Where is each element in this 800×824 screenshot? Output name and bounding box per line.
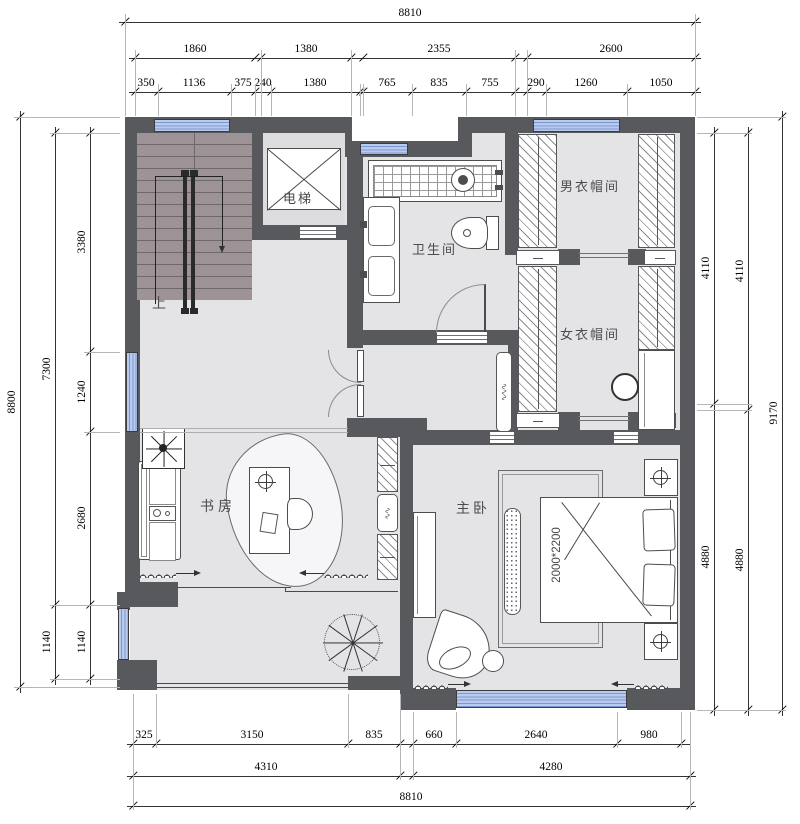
dim-label: 4880 — [734, 530, 746, 590]
extension-line — [412, 84, 413, 116]
dim-line — [714, 127, 715, 716]
dim-label: 4110 — [700, 238, 712, 298]
dim-label: 4110 — [734, 241, 746, 301]
extension-line — [515, 50, 516, 116]
dim-label: 3150 — [222, 729, 282, 741]
extension-line — [697, 710, 752, 711]
dim-label: 1140 — [76, 612, 88, 672]
dim-line — [129, 92, 701, 93]
extension-line — [681, 712, 682, 748]
dim-line — [20, 111, 21, 693]
extension-line — [690, 712, 691, 780]
extension-line — [617, 712, 618, 748]
extension-line — [466, 84, 467, 116]
dim-label: 1380 — [276, 43, 336, 55]
extension-line — [133, 694, 134, 748]
extension-line — [348, 694, 349, 748]
extension-line — [400, 694, 401, 748]
extension-line — [50, 679, 120, 680]
extension-line — [14, 687, 120, 688]
dim-label: 8800 — [6, 372, 18, 432]
extension-line — [133, 748, 134, 780]
dim-label: 2600 — [581, 43, 641, 55]
extension-line — [133, 780, 134, 810]
extension-line — [527, 50, 528, 116]
floor-plan: ∿∿∿ ∿∿ 上 — [0, 0, 800, 824]
extension-line — [546, 84, 547, 116]
extension-line — [156, 694, 157, 748]
dim-label: 240 — [233, 77, 293, 89]
dim-label: 4880 — [700, 527, 712, 587]
extension-line — [456, 712, 457, 748]
dim-label: 7300 — [41, 339, 53, 399]
extension-line — [125, 14, 126, 116]
dim-label: 835 — [344, 729, 404, 741]
dim-label: 1860 — [165, 43, 225, 55]
extension-line — [271, 84, 272, 116]
extension-line — [50, 605, 120, 606]
dim-label: 2355 — [409, 43, 469, 55]
extension-line — [255, 84, 256, 116]
extension-line — [413, 712, 414, 748]
extension-line — [697, 133, 752, 134]
extension-line — [50, 133, 120, 134]
dim-line — [129, 58, 701, 59]
dim-label: 980 — [619, 729, 679, 741]
extension-line — [752, 710, 786, 711]
dim-line — [119, 22, 701, 23]
extension-line — [231, 84, 232, 116]
extension-line — [627, 84, 628, 116]
extension-line — [690, 780, 691, 810]
dim-line — [748, 127, 749, 716]
extension-line — [84, 432, 120, 433]
dim-label: 1140 — [41, 612, 53, 672]
extension-line — [84, 352, 120, 353]
extension-line — [363, 84, 364, 116]
extension-line — [351, 50, 352, 116]
dim-label: 4280 — [521, 761, 581, 773]
dim-line — [127, 744, 691, 745]
dim-line — [782, 111, 783, 716]
dim-label: 765 — [357, 77, 417, 89]
dimension-annotations: 8810186013802355260035011363752401380765… — [0, 0, 800, 824]
extension-line — [697, 404, 752, 405]
extension-line — [697, 117, 786, 118]
dim-label: 325 — [114, 729, 174, 741]
extension-line — [14, 117, 120, 118]
dim-label: 1240 — [76, 362, 88, 422]
extension-line — [413, 748, 414, 780]
extension-line — [261, 50, 262, 116]
dim-label: 2640 — [506, 729, 566, 741]
extension-line — [360, 84, 361, 116]
dim-label: 2680 — [76, 488, 88, 548]
dim-label: 8810 — [381, 791, 441, 803]
dim-label: 1050 — [631, 77, 691, 89]
dim-line — [127, 806, 696, 807]
extension-line — [158, 84, 159, 116]
dim-label: 1260 — [556, 77, 616, 89]
extension-line — [697, 410, 752, 411]
extension-line — [695, 14, 696, 116]
dim-label: 8810 — [380, 7, 440, 19]
dim-label: 1380 — [285, 77, 345, 89]
extension-line — [135, 50, 136, 116]
dim-label: 4310 — [236, 761, 296, 773]
extension-line — [400, 748, 401, 780]
dim-label: 3380 — [76, 212, 88, 272]
dim-label: 9170 — [768, 383, 780, 443]
